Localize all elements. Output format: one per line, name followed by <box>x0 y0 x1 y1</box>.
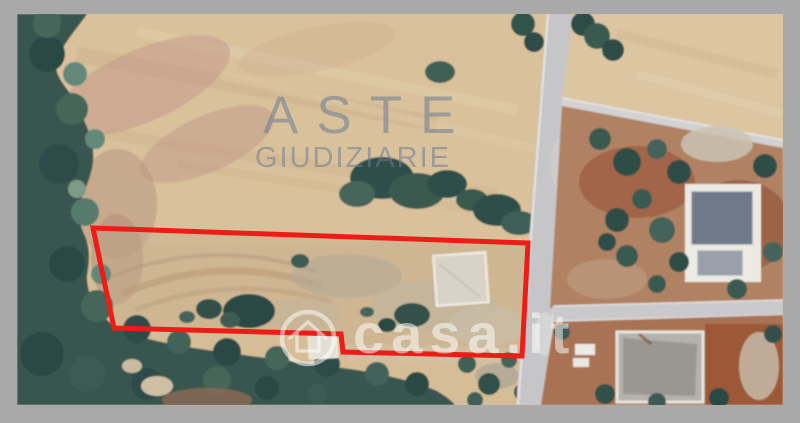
aste-watermark-line2: GIUDIZIARIE <box>255 142 451 174</box>
aste-watermark-line1: ASTE <box>263 86 473 145</box>
casa-watermark-text: casa.it <box>353 302 576 365</box>
aerial-photo: ASTE GIUDIZIARIE casa.it <box>17 14 783 405</box>
aste-giudiziarie-watermark: ASTE GIUDIZIARIE <box>255 86 473 174</box>
aerial-photo-scene: ASTE GIUDIZIARIE casa.it <box>17 14 783 405</box>
